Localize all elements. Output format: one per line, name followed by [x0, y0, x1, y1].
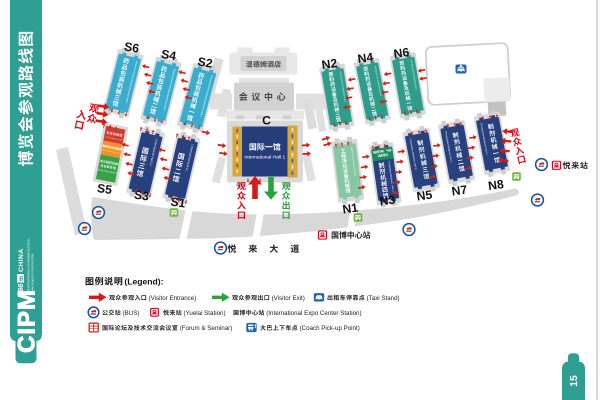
svg-text:S5: S5 — [96, 181, 113, 197]
svg-text:CHINA: CHINA — [18, 248, 25, 272]
svg-text:N3: N3 — [379, 192, 397, 208]
svg-text:S4: S4 — [160, 47, 177, 63]
svg-text:(Legend):: (Legend): — [124, 277, 163, 287]
svg-text:N6: N6 — [393, 45, 411, 61]
svg-text:S2: S2 — [197, 54, 214, 70]
svg-text:15: 15 — [568, 375, 580, 387]
svg-text:(Forum & Seminar): (Forum & Seminar) — [180, 325, 233, 332]
svg-text:(International Expo Center Sta: (International Expo Center Station) — [266, 310, 361, 317]
svg-text:N4: N4 — [357, 50, 375, 66]
svg-text:S3: S3 — [133, 188, 150, 204]
svg-text:(Visitor Exit): (Visitor Exit) — [272, 295, 305, 302]
svg-text:N7: N7 — [451, 182, 469, 198]
svg-text:N5: N5 — [416, 187, 434, 203]
svg-text:(Taxi Stand): (Taxi Stand) — [367, 295, 400, 302]
svg-text:(Yuelai Station): (Yuelai Station) — [184, 310, 226, 317]
svg-text:(BUS): (BUS) — [123, 310, 140, 317]
svg-text:66: 66 — [16, 283, 25, 292]
svg-text:(Coach Pick-up Point): (Coach Pick-up Point) — [300, 325, 360, 332]
svg-text:International Hall 1: International Hall 1 — [244, 155, 285, 161]
svg-text:th: th — [19, 275, 25, 281]
svg-text:C: C — [262, 114, 271, 128]
svg-text:(Visitor Entrance): (Visitor Entrance) — [149, 295, 197, 302]
svg-text:S6: S6 — [123, 39, 140, 55]
svg-text:MACHINERY EXPOSITION: MACHINERY EXPOSITION — [31, 254, 35, 292]
svg-text:CIPM: CIPM — [14, 289, 41, 353]
svg-text:N8: N8 — [487, 177, 505, 193]
svg-text:N2: N2 — [321, 56, 339, 72]
